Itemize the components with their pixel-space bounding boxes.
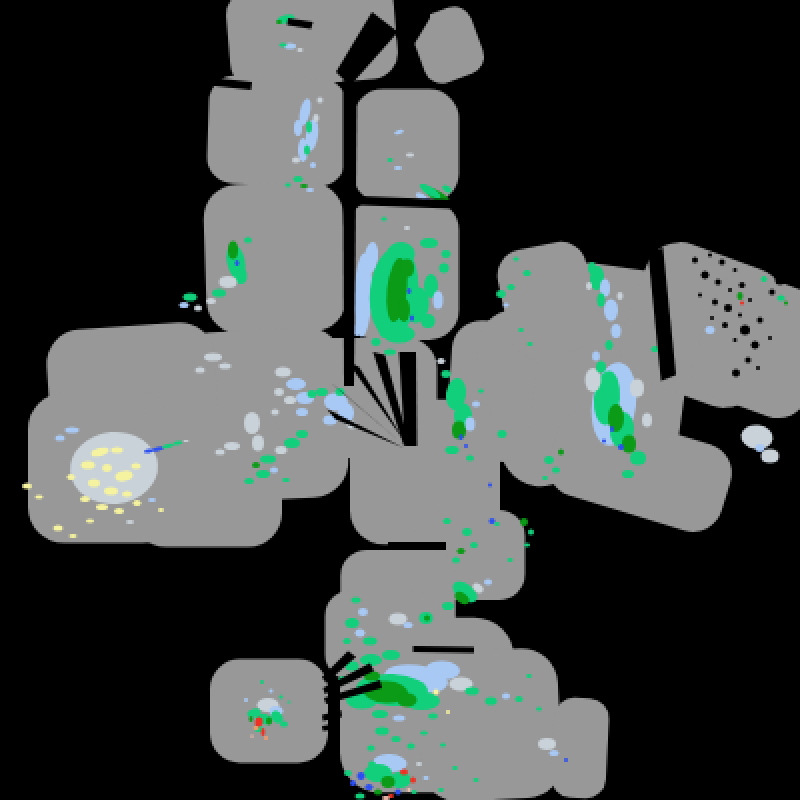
radar-mosaic-canvas (0, 0, 800, 800)
weather-radar-composite (0, 0, 800, 800)
